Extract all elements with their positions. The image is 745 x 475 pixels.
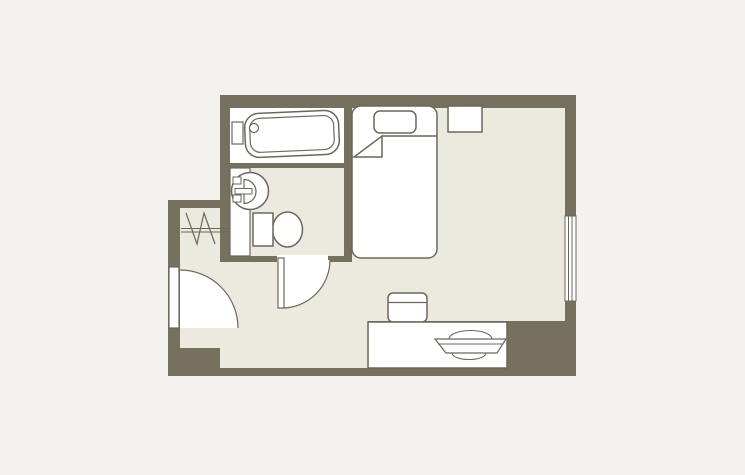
wall-bathroom-left <box>220 95 230 262</box>
bathtub <box>232 110 340 158</box>
single-bed <box>352 106 437 258</box>
wall-bathroom-divider <box>230 163 344 168</box>
wall-bathroom-right <box>344 95 352 262</box>
bathtub-drain <box>250 124 259 133</box>
toilet-tank <box>253 213 273 246</box>
washbasin <box>232 173 269 210</box>
washbasin-faucet-bar <box>235 189 252 195</box>
tv-screen <box>435 339 506 353</box>
washbasin-tap-top <box>233 177 241 184</box>
washbasin-tap-bottom <box>233 195 241 202</box>
bathtub-faucet <box>232 122 243 144</box>
toilet <box>253 212 303 247</box>
toilet-bowl <box>273 212 303 247</box>
chair <box>388 293 427 322</box>
window <box>565 216 576 301</box>
bathtub-inner <box>249 115 334 153</box>
wall-shelf <box>448 106 482 132</box>
bathroom-door-leaf <box>278 258 284 308</box>
wall-bottom <box>168 368 576 376</box>
floor-plan <box>0 0 745 475</box>
floor-plan-page <box>0 0 745 475</box>
window-frame <box>565 216 576 301</box>
wall-bottom-left-step <box>168 348 220 369</box>
wall-right-upper <box>565 95 576 216</box>
chair-seat <box>388 293 427 322</box>
entry-door-leaf <box>169 267 179 328</box>
pillow <box>374 111 416 133</box>
